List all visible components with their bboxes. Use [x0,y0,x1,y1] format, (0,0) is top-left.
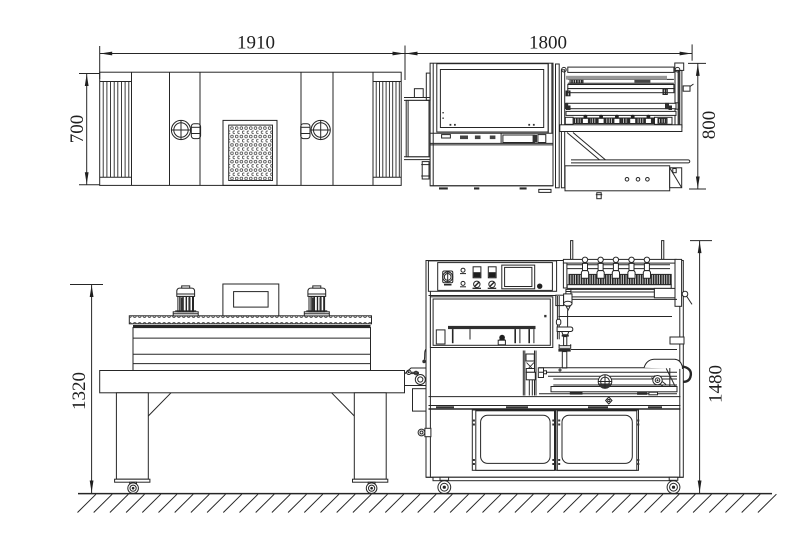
svg-text:800: 800 [699,111,720,140]
svg-text:700: 700 [67,115,88,144]
svg-text:1910: 1910 [237,33,275,54]
svg-text:1320: 1320 [69,372,90,410]
svg-text:1480: 1480 [706,365,727,403]
svg-text:1800: 1800 [529,33,567,54]
